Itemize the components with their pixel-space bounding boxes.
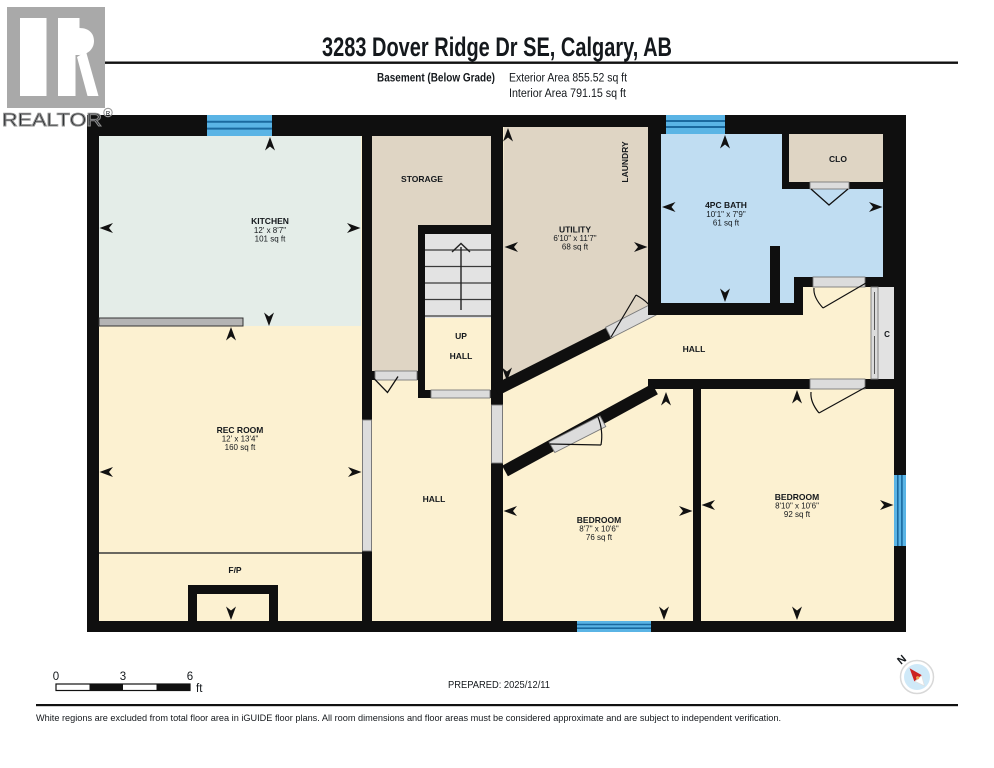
svg-text:HALL: HALL [683,344,706,354]
svg-text:R: R [106,112,111,118]
svg-text:0: 0 [53,671,59,683]
svg-text:F/P: F/P [228,565,242,575]
svg-text:UP: UP [455,331,467,341]
svg-text:STORAGE: STORAGE [401,174,443,184]
svg-text:Basement (Below Grade): Basement (Below Grade) [377,71,495,85]
svg-text:3: 3 [120,671,126,683]
svg-text:ft: ft [196,683,203,695]
svg-text:PREPARED: 2025/12/11: PREPARED: 2025/12/11 [448,679,550,691]
svg-text:3283 Dover Ridge Dr SE, Calgar: 3283 Dover Ridge Dr SE, Calgary, AB [322,32,672,62]
svg-text:6: 6 [187,671,193,683]
svg-text:4PC BATH: 4PC BATH [705,200,747,210]
svg-text:C: C [884,330,890,339]
svg-text:92 sq ft: 92 sq ft [784,510,811,519]
svg-text:REALTOR: REALTOR [2,109,102,130]
svg-text:HALL: HALL [450,351,473,361]
svg-text:BEDROOM: BEDROOM [775,492,819,502]
svg-text:CLO: CLO [829,154,847,164]
svg-text:101 sq ft: 101 sq ft [255,235,286,244]
svg-text:76 sq ft: 76 sq ft [586,533,613,542]
svg-text:61 sq ft: 61 sq ft [713,219,740,228]
svg-text:160 sq ft: 160 sq ft [225,443,256,452]
svg-text:KITCHEN: KITCHEN [251,216,289,226]
svg-text:White regions are excluded fro: White regions are excluded from total fl… [36,713,781,724]
svg-text:LAUNDRY: LAUNDRY [620,141,630,183]
svg-text:Exterior Area 855.52 sq ft: Exterior Area 855.52 sq ft [509,71,628,85]
svg-text:68 sq ft: 68 sq ft [562,243,589,252]
svg-text:HALL: HALL [423,494,446,504]
svg-text:UTILITY: UTILITY [559,225,591,235]
svg-text:BEDROOM: BEDROOM [577,515,621,525]
svg-text:REC ROOM: REC ROOM [217,425,264,435]
svg-text:Interior Area 791.15 sq ft: Interior Area 791.15 sq ft [509,86,627,100]
